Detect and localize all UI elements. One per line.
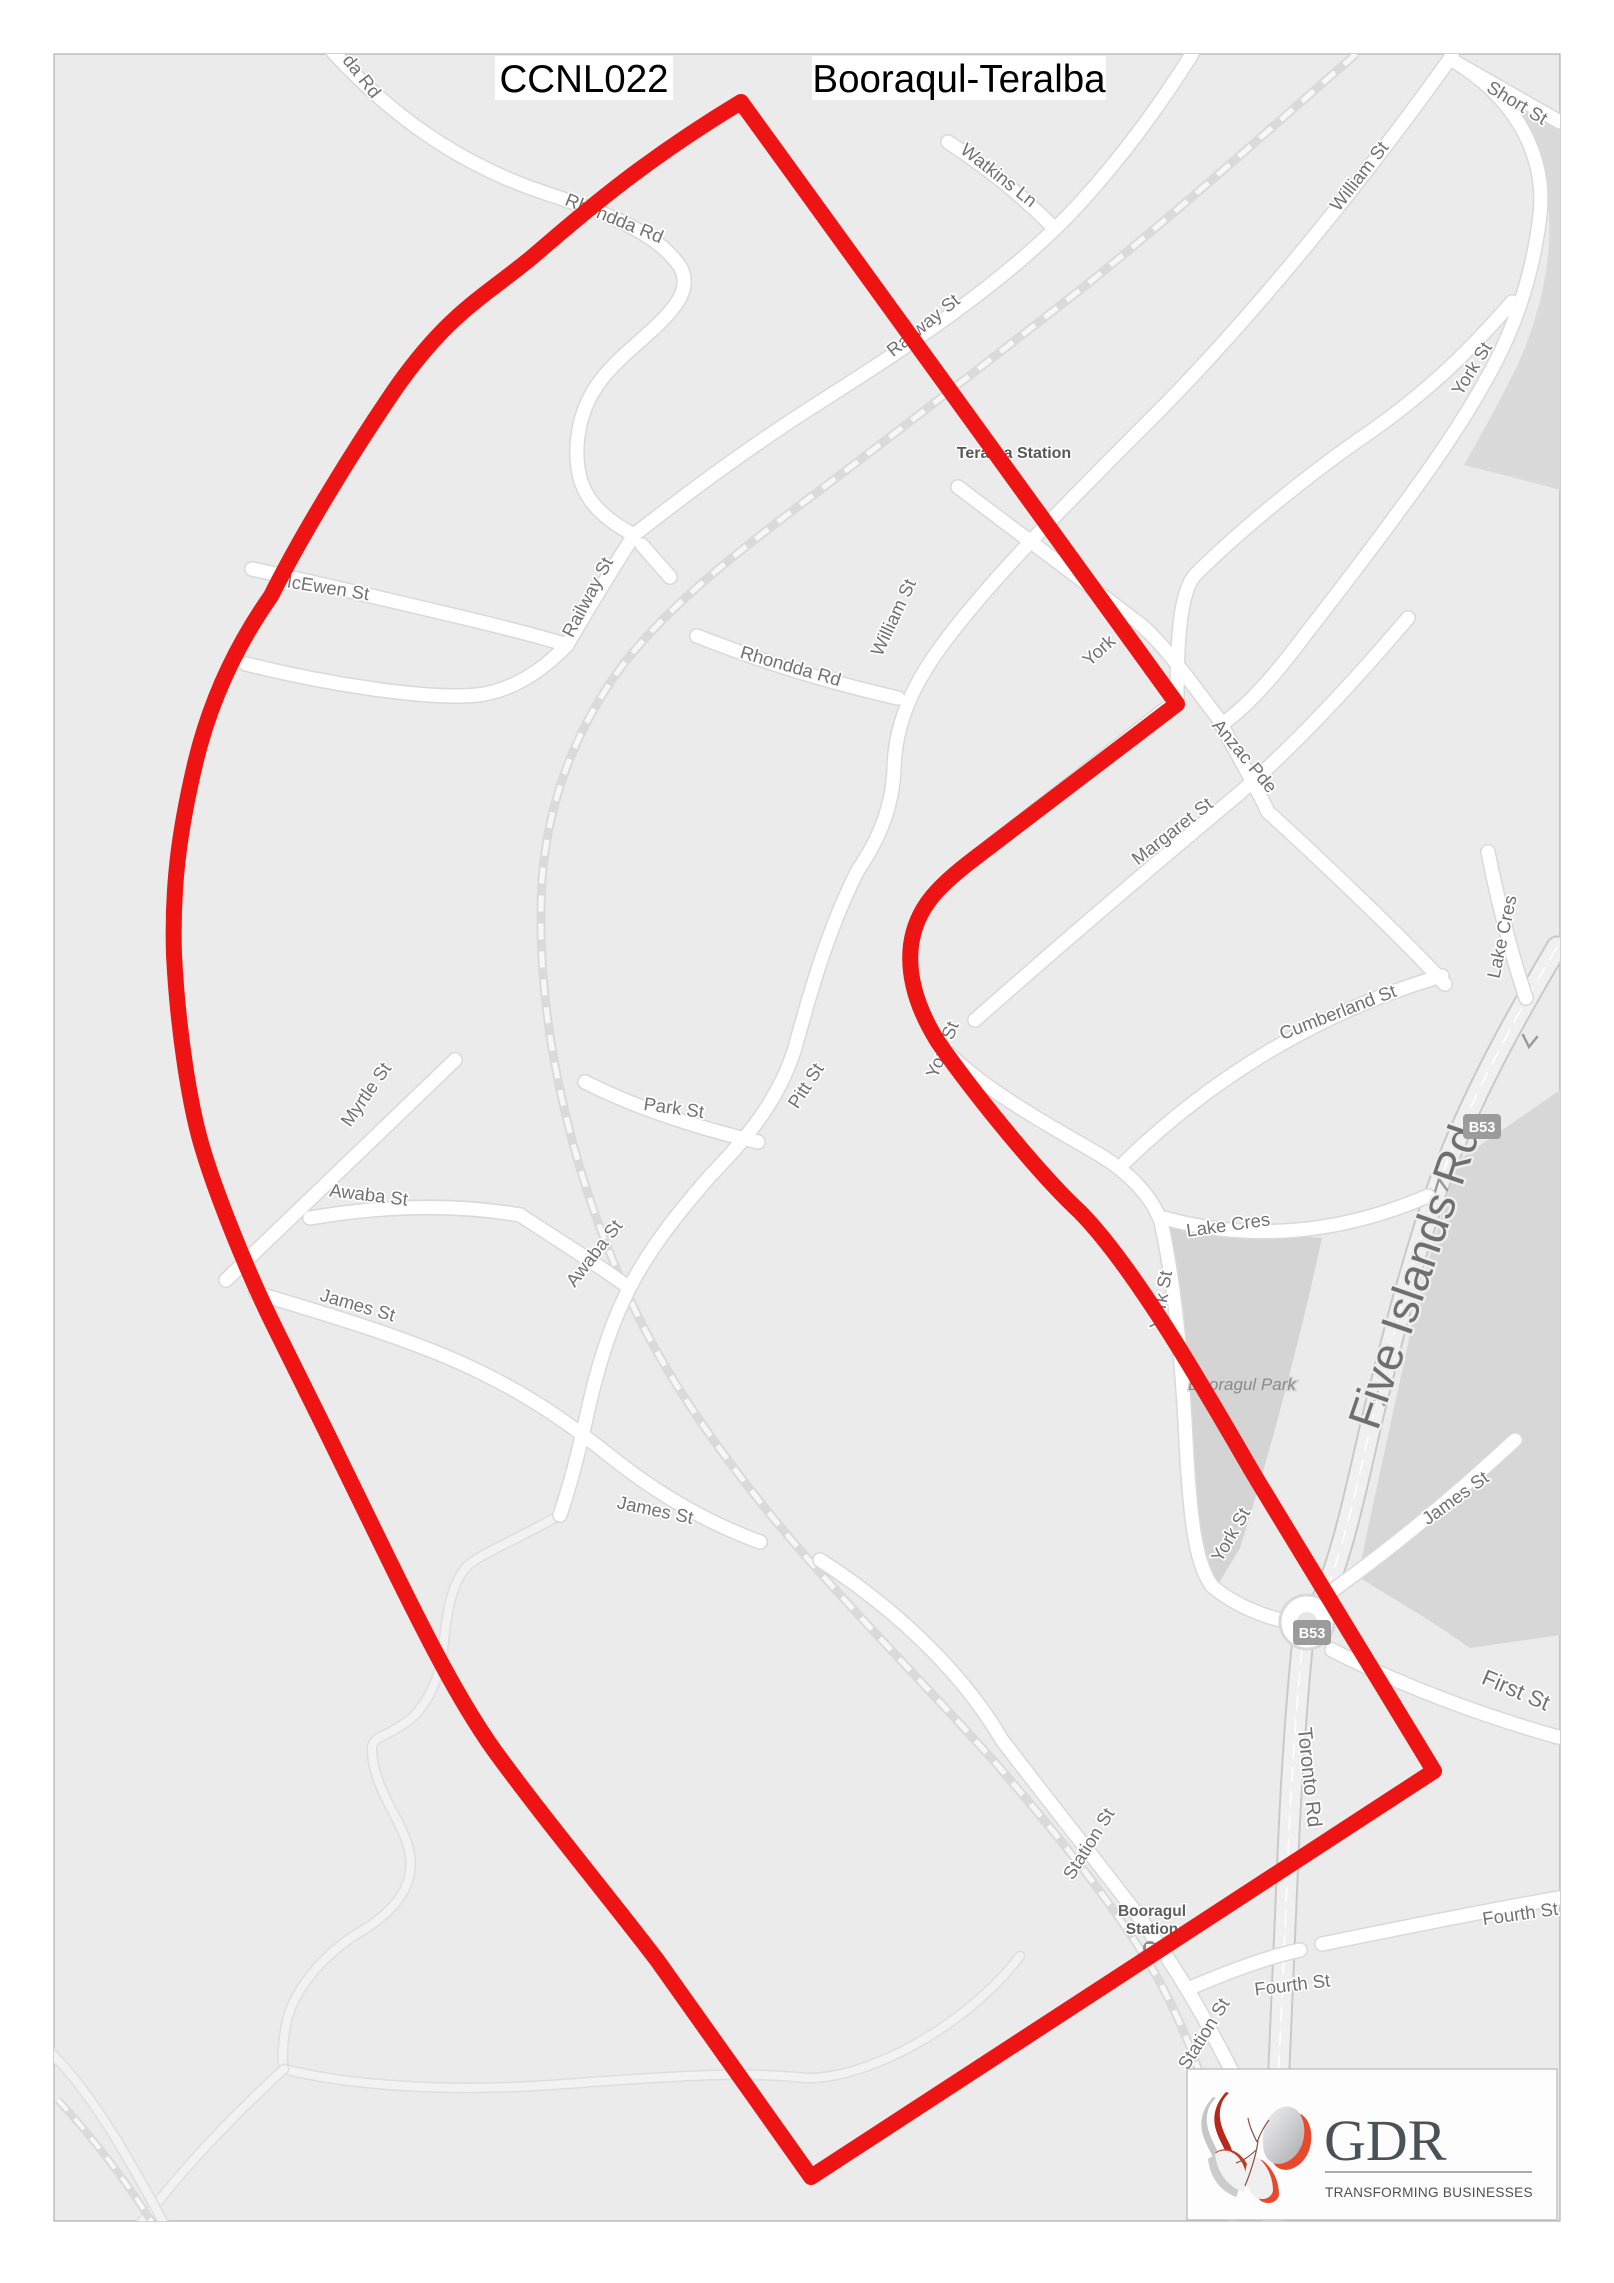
svg-text:Booragul: Booragul (1118, 1903, 1186, 1920)
svg-text:B53: B53 (1469, 1120, 1496, 1136)
svg-text:Teralba Station: Teralba Station (957, 445, 1071, 462)
svg-text:GDR: GDR (1324, 2108, 1447, 2173)
svg-text:Booraqul-Teralba: Booraqul-Teralba (812, 58, 1106, 101)
svg-text:B53: B53 (1299, 1626, 1326, 1642)
svg-text:TRANSFORMING BUSINESSES: TRANSFORMING BUSINESSES (1325, 2185, 1533, 2200)
svg-text:CCNL022: CCNL022 (499, 58, 668, 101)
